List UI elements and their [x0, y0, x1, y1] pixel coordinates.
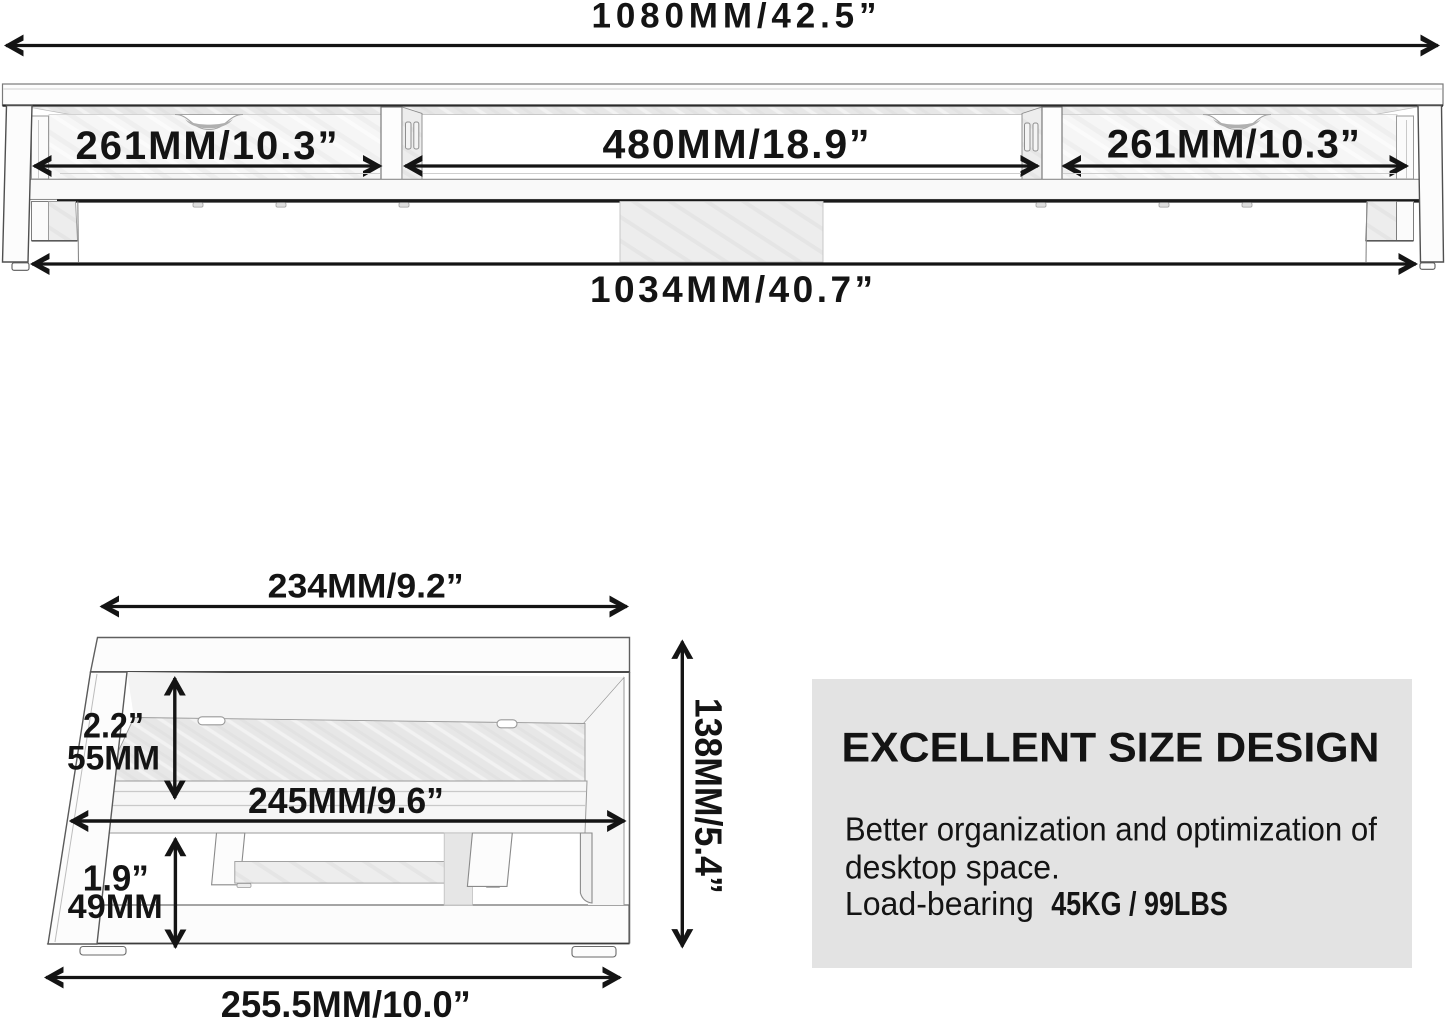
svg-text:49MM: 49MM: [68, 888, 163, 926]
svg-text:desktop space.: desktop space.: [845, 849, 1060, 886]
svg-text:Better organization and optimi: Better organization and optimization of: [845, 810, 1378, 847]
svg-text:55MM: 55MM: [67, 740, 160, 778]
svg-text:261MM/10.3”: 261MM/10.3”: [1107, 122, 1360, 166]
svg-text:45KG / 99LBS: 45KG / 99LBS: [1051, 885, 1228, 922]
svg-text:138MM/5.4”: 138MM/5.4”: [687, 698, 729, 894]
svg-text:480MM/18.9”: 480MM/18.9”: [603, 121, 870, 167]
svg-text:261MM/10.3”: 261MM/10.3”: [76, 124, 338, 168]
svg-text:1034MM/40.7”: 1034MM/40.7”: [590, 269, 873, 310]
svg-text:EXCELLENT SIZE DESIGN: EXCELLENT SIZE DESIGN: [842, 723, 1380, 770]
svg-text:1080MM/42.5”: 1080MM/42.5”: [592, 0, 877, 36]
svg-text:Load-bearing: Load-bearing: [845, 885, 1034, 922]
svg-text:255.5MM/10.0”: 255.5MM/10.0”: [221, 984, 471, 1019]
svg-text:245MM/9.6”: 245MM/9.6”: [248, 780, 444, 821]
svg-text:234MM/9.2”: 234MM/9.2”: [268, 568, 464, 606]
